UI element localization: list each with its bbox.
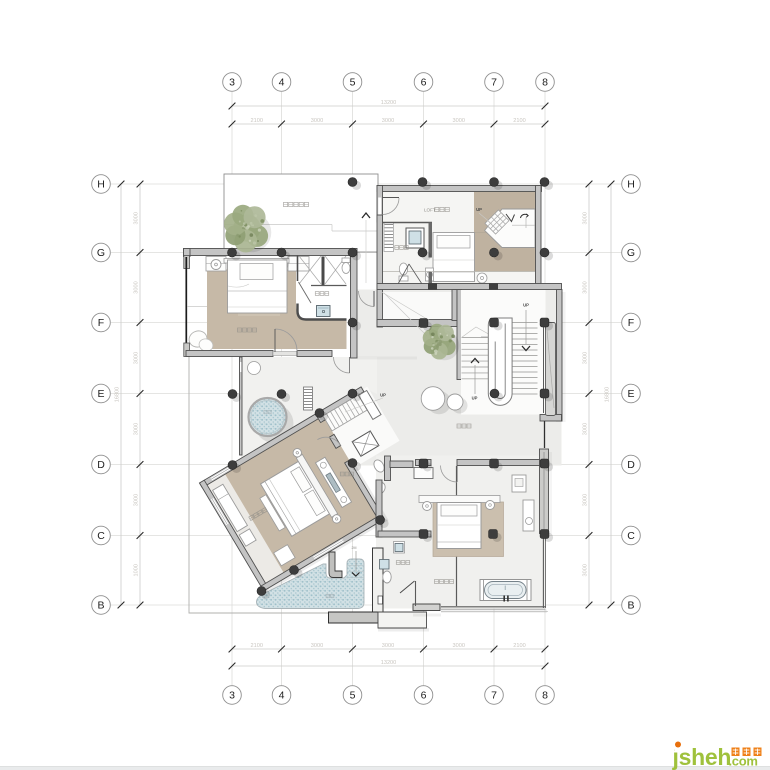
- svg-text:8: 8: [542, 690, 548, 702]
- svg-text:3000: 3000: [134, 423, 140, 435]
- svg-text:2100: 2100: [251, 118, 263, 124]
- svg-text:3000: 3000: [134, 281, 140, 293]
- svg-text:8: 8: [542, 77, 548, 89]
- svg-text:3000: 3000: [453, 643, 465, 649]
- svg-text:H: H: [627, 179, 635, 191]
- svg-text:3000: 3000: [134, 352, 140, 364]
- svg-text:5: 5: [350, 690, 356, 702]
- svg-text:UP: UP: [523, 303, 529, 308]
- svg-text:3000: 3000: [382, 643, 394, 649]
- svg-text:3000: 3000: [453, 118, 465, 124]
- svg-text:G: G: [627, 247, 635, 259]
- svg-text:B: B: [97, 600, 104, 612]
- svg-text:2M: 2M: [352, 546, 357, 550]
- svg-text:UP: UP: [380, 393, 386, 398]
- svg-text:7: 7: [491, 77, 497, 89]
- svg-text:C: C: [627, 530, 635, 542]
- svg-text:E: E: [97, 388, 104, 400]
- svg-text:3000: 3000: [134, 212, 140, 224]
- svg-text:D: D: [97, 459, 105, 471]
- svg-text:5: 5: [350, 77, 356, 89]
- svg-text:G: G: [97, 247, 105, 259]
- svg-text:LOFT: LOFT: [424, 208, 436, 213]
- svg-text:UP: UP: [472, 396, 478, 401]
- svg-text:D: D: [627, 459, 635, 471]
- svg-text:3000: 3000: [583, 352, 589, 364]
- svg-text:13200: 13200: [381, 100, 397, 106]
- svg-text:3: 3: [229, 77, 235, 89]
- svg-text:6: 6: [421, 77, 427, 89]
- svg-text:2100: 2100: [513, 118, 525, 124]
- svg-text:E: E: [627, 388, 634, 400]
- svg-text:C: C: [97, 530, 105, 542]
- svg-text:4: 4: [279, 77, 285, 89]
- svg-text:3000: 3000: [311, 118, 323, 124]
- svg-text:4: 4: [279, 690, 285, 702]
- svg-text:3000: 3000: [583, 281, 589, 293]
- svg-text:3000: 3000: [583, 423, 589, 435]
- svg-text:16800: 16800: [605, 387, 611, 403]
- svg-text:6: 6: [421, 690, 427, 702]
- svg-text:2100: 2100: [513, 643, 525, 649]
- svg-text:UP: UP: [476, 207, 482, 212]
- svg-text:3000: 3000: [311, 643, 323, 649]
- svg-text:13200: 13200: [381, 660, 397, 666]
- svg-text:3000: 3000: [134, 494, 140, 506]
- svg-text:3: 3: [229, 690, 235, 702]
- svg-text:B: B: [627, 600, 634, 612]
- svg-text:H: H: [97, 179, 105, 191]
- svg-text:16800: 16800: [115, 387, 121, 403]
- svg-text:F: F: [628, 317, 634, 329]
- svg-text:2100: 2100: [251, 643, 263, 649]
- svg-text:7: 7: [491, 690, 497, 702]
- svg-text:1000: 1000: [134, 564, 140, 576]
- svg-text:3000: 3000: [382, 118, 394, 124]
- svg-text:3000: 3000: [583, 564, 589, 576]
- svg-text:3000: 3000: [583, 212, 589, 224]
- svg-text:F: F: [98, 317, 104, 329]
- svg-text:3000: 3000: [583, 494, 589, 506]
